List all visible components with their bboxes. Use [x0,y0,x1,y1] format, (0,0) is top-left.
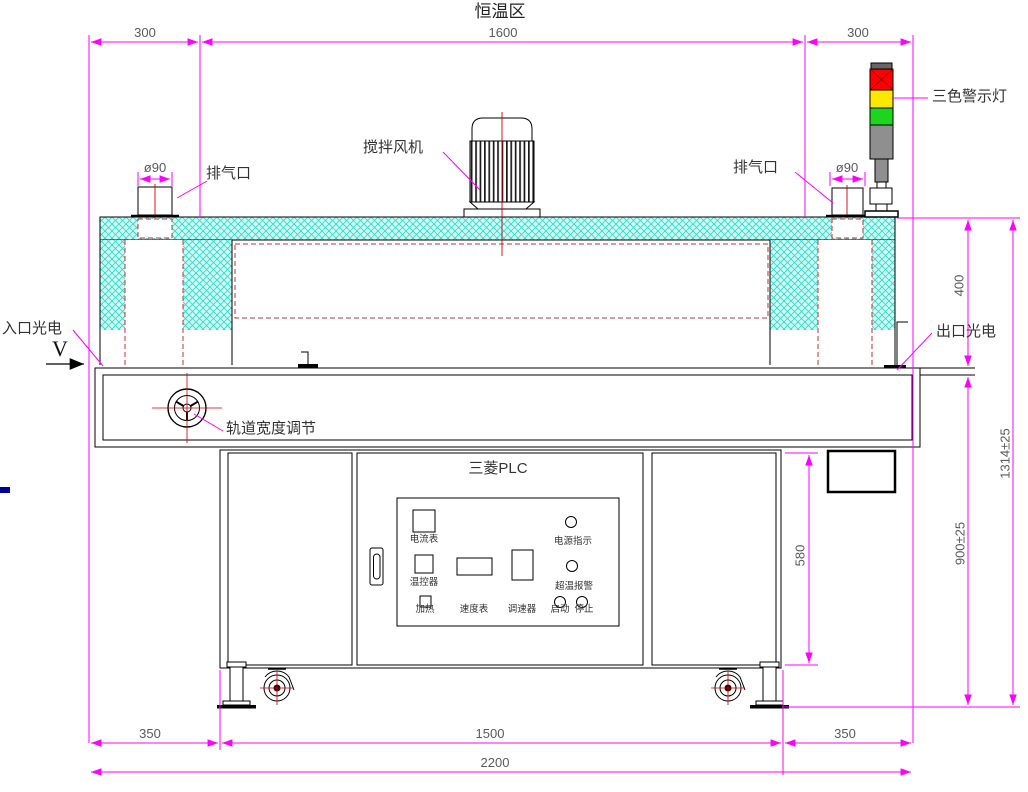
speedometer-meter [457,558,492,575]
temp-controller-unit [415,555,433,573]
stray-mark [0,487,10,493]
label-stop: 停止 [569,605,599,615]
label-power-indicator: 电源指示 [549,537,597,547]
dim-exhaust-left-dia: ø90 [130,161,180,174]
label-ammeter: 电流表 [400,535,448,545]
dim-exhaust-right-dia: ø90 [822,161,872,174]
label-outlet-sensor: 出口光电 [936,324,996,341]
overtemp-alarm-lamp [567,561,578,572]
dim-total-width: 2200 [455,756,535,769]
label-plc: 三菱PLC [438,461,558,478]
label-temp-controller: 温控器 [400,578,448,588]
label-heating: 加热 [405,605,445,615]
label-warning-light: 三色警示灯 [932,89,1007,106]
caster-wheel-left [260,669,294,705]
caster-wheel-right [711,669,745,705]
label-feed-direction: V [52,338,68,360]
ammeter-meter [413,510,435,532]
dim-bottom-right: 350 [805,727,885,740]
exhaust-port-right [826,185,869,217]
warning-light-tower [865,63,898,217]
label-exhaust-right: 排气口 [733,160,778,177]
dim-bottom-left: 350 [110,727,190,740]
label-speedometer: 速度表 [450,605,498,615]
speed-regulator-unit [512,550,533,580]
leveling-foot-left [217,662,256,709]
dim-bottom-center: 1500 [450,727,530,740]
label-track-width-adjust: 轨道宽度调节 [226,421,316,438]
power-indicator-lamp [566,517,577,528]
label-speed-regulator: 调速器 [498,605,546,615]
dim-top-right: 300 [818,26,898,39]
dim-top-center: 1600 [458,26,548,39]
engineering-drawing-canvas: 恒温区 300 1600 300 ø90 ø90 三色警示灯 排气口 排气口 搅… [0,0,1028,792]
exhaust-port-left [131,184,179,217]
zone-title: 恒温区 [440,3,560,22]
drive-box [828,451,895,492]
dim-total-height: 1314±25 [999,419,1012,489]
dim-table-height: 900±25 [954,514,967,574]
label-overtemp-alarm: 超温报警 [548,582,600,592]
dim-top-left: 300 [105,26,185,39]
photo-sensor-inlet [298,352,318,368]
dim-cabinet-height: 580 [794,536,807,576]
label-stirring-fan: 搅拌风机 [363,140,423,157]
oven-body [100,217,895,365]
dim-oven-height: 400 [953,266,966,306]
label-exhaust-left: 排气口 [206,166,251,183]
machine-drawing [0,0,1028,792]
